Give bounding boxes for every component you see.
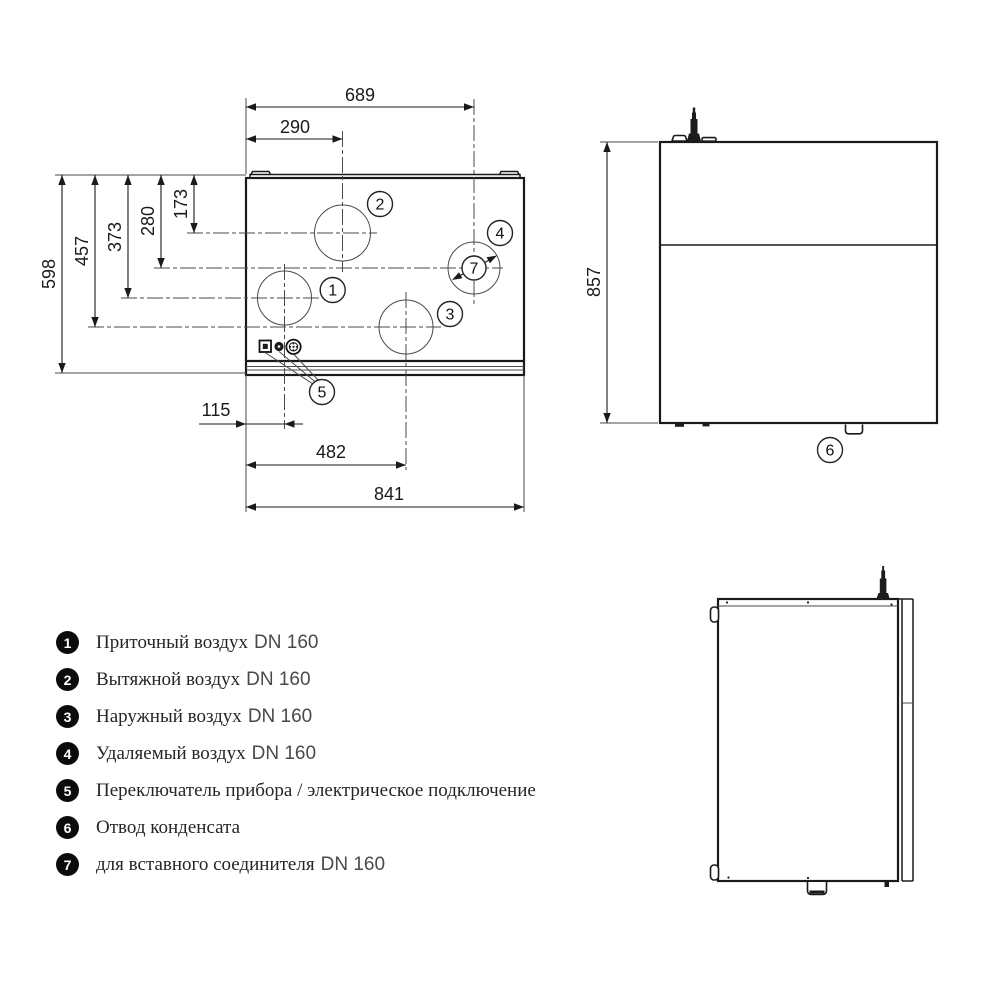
legend-item-7: 7 для вставного соединителя DN 160: [56, 846, 542, 883]
legend-item-6: 6 Отвод конденсата: [56, 809, 542, 846]
legend-item-5: 5 Переключатель прибора / электрическое …: [56, 772, 542, 809]
dim-857: 857: [584, 142, 658, 423]
legend-text-6: Отвод конденсата: [96, 817, 240, 839]
dim-280-value: 280: [138, 206, 158, 236]
dim-689: 689: [246, 85, 474, 111]
technical-drawing-page: 1 2 3 4 5 7: [0, 0, 1000, 1000]
legend-dn-2: DN 160: [246, 669, 310, 691]
front-view: 1 2 3 4 5 7: [39, 85, 524, 512]
legend-dn-4: DN 160: [252, 743, 316, 765]
callout-7-label: 7: [470, 261, 479, 278]
side-bottom-fittings: [675, 424, 863, 434]
callout-6-label: 6: [826, 443, 835, 460]
callout-2-label: 2: [376, 197, 385, 214]
dim-482-value: 482: [316, 442, 346, 462]
dim-598-value: 598: [39, 259, 59, 289]
legend-badge-3: 3: [56, 705, 79, 728]
legend-badge-5: 5: [56, 779, 79, 802]
side-view: 857 6: [584, 108, 937, 463]
callout-4-label: 4: [496, 226, 505, 243]
connector-icon: [286, 340, 300, 354]
side2-drain: [808, 882, 827, 895]
dim-173-value: 173: [171, 189, 191, 219]
dim-457-value: 457: [72, 236, 92, 266]
legend-item-2: 2 Вытяжной воздух DN 160: [56, 661, 542, 698]
legend-text-5: Переключатель прибора / электрическое по…: [96, 780, 536, 802]
callout-1-label: 1: [328, 283, 337, 300]
legend-text-3: Наружный воздух: [96, 706, 242, 728]
dim-841: 841: [246, 484, 524, 511]
legend-text-1: Приточный воздух: [96, 632, 248, 654]
legend: 1 Приточный воздух DN 160 2 Вытяжной воз…: [56, 624, 542, 883]
dim-115: 115: [199, 400, 303, 428]
legend-text-7: для вставного соединителя: [96, 854, 315, 876]
dim-689-value: 689: [345, 85, 375, 105]
dim-280: 280: [138, 175, 165, 268]
callout-3: 3: [438, 302, 463, 327]
condensate-drain-side: [846, 425, 863, 434]
callout-5: 5: [310, 380, 335, 405]
legend-dn-3: DN 160: [248, 706, 312, 728]
dim-290-value: 290: [280, 117, 310, 137]
dim-290: 290: [246, 117, 343, 143]
dim-457: 457: [72, 175, 99, 327]
hinge-bottom-icon: [711, 865, 719, 880]
dim-115-value: 115: [202, 400, 231, 420]
side-top-fittings: [672, 108, 716, 142]
legend-badge-6: 6: [56, 816, 79, 839]
side-cabinet-outline: [660, 142, 937, 423]
legend-badge-7: 7: [56, 853, 79, 876]
callout-1: 1: [320, 278, 345, 303]
side-view-2: [711, 566, 914, 895]
dim-857-value: 857: [584, 267, 604, 297]
callout-6: 6: [818, 438, 843, 463]
cable-gland-icon: [687, 134, 701, 142]
callout-2: 2: [368, 192, 393, 217]
legend-dn-1: DN 160: [254, 632, 318, 654]
callout-3-label: 3: [446, 307, 455, 324]
legend-badge-2: 2: [56, 668, 79, 691]
dim-373-value: 373: [105, 222, 125, 252]
legend-text-2: Вытяжной воздух: [96, 669, 240, 691]
hinge-top-icon: [711, 607, 719, 622]
legend-item-3: 3 Наружный воздух DN 160: [56, 698, 542, 735]
callout-5-label: 5: [318, 385, 327, 402]
legend-badge-1: 1: [56, 631, 79, 654]
dim-482: 482: [246, 442, 406, 469]
dim-598: 598: [39, 175, 66, 373]
legend-item-1: 1 Приточный воздух DN 160: [56, 624, 542, 661]
legend-badge-4: 4: [56, 742, 79, 765]
callout-4: 4: [488, 221, 513, 246]
dim-373: 373: [105, 175, 132, 298]
legend-item-4: 4 Удаляемый воздух DN 160: [56, 735, 542, 772]
side2-cabinet-outline: [718, 599, 898, 881]
legend-dn-7: DN 160: [321, 854, 385, 876]
legend-text-4: Удаляемый воздух: [96, 743, 246, 765]
side2-cable-gland: [876, 566, 890, 600]
dim-841-value: 841: [374, 484, 404, 504]
dim-173: 173: [171, 175, 198, 233]
